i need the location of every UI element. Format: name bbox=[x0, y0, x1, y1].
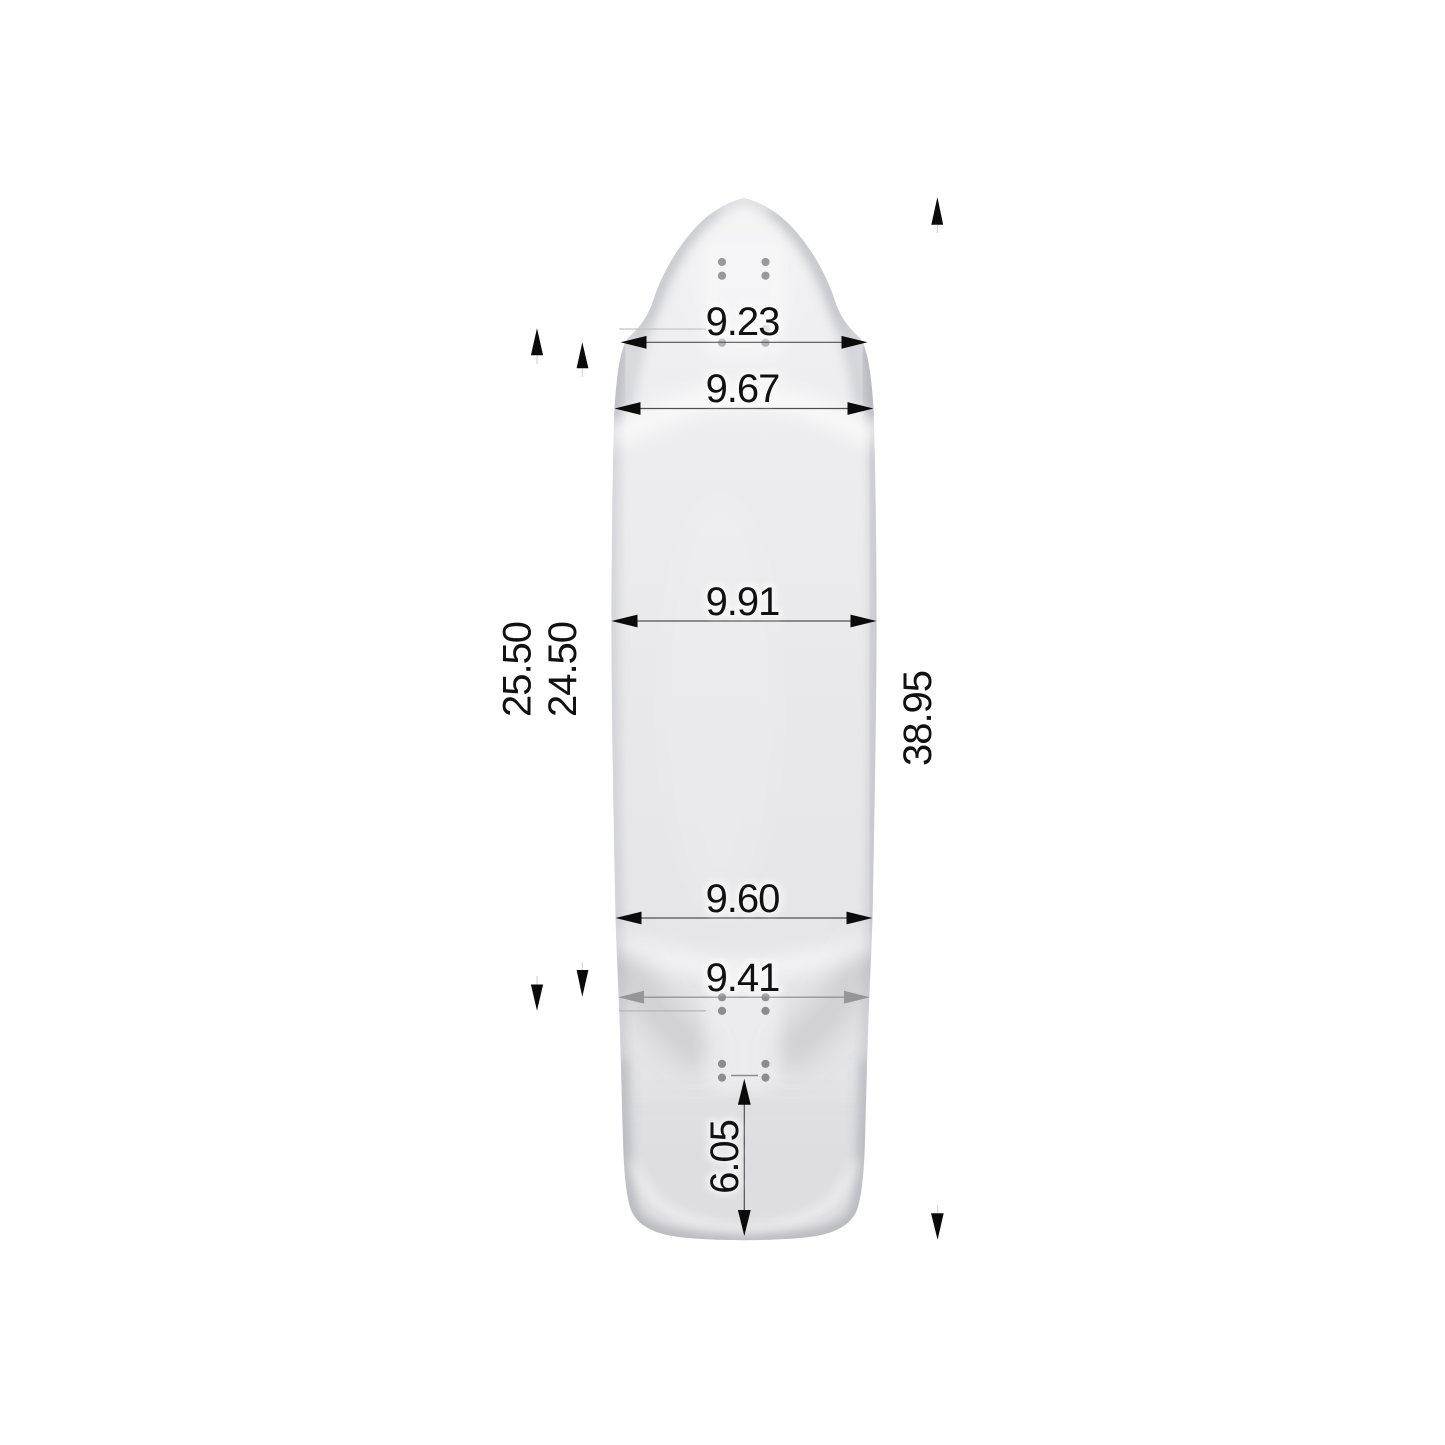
svg-text:9.91: 9.91 bbox=[706, 580, 780, 624]
svg-text:6.05: 6.05 bbox=[703, 1120, 747, 1194]
svg-text:9.23: 9.23 bbox=[706, 300, 780, 344]
svg-text:25.50: 25.50 bbox=[496, 622, 540, 717]
svg-text:38.95: 38.95 bbox=[896, 671, 940, 766]
svg-text:9.60: 9.60 bbox=[706, 877, 780, 921]
svg-text:24.50: 24.50 bbox=[541, 622, 585, 717]
svg-text:9.41: 9.41 bbox=[706, 956, 780, 1000]
svg-text:9.67: 9.67 bbox=[706, 367, 780, 411]
